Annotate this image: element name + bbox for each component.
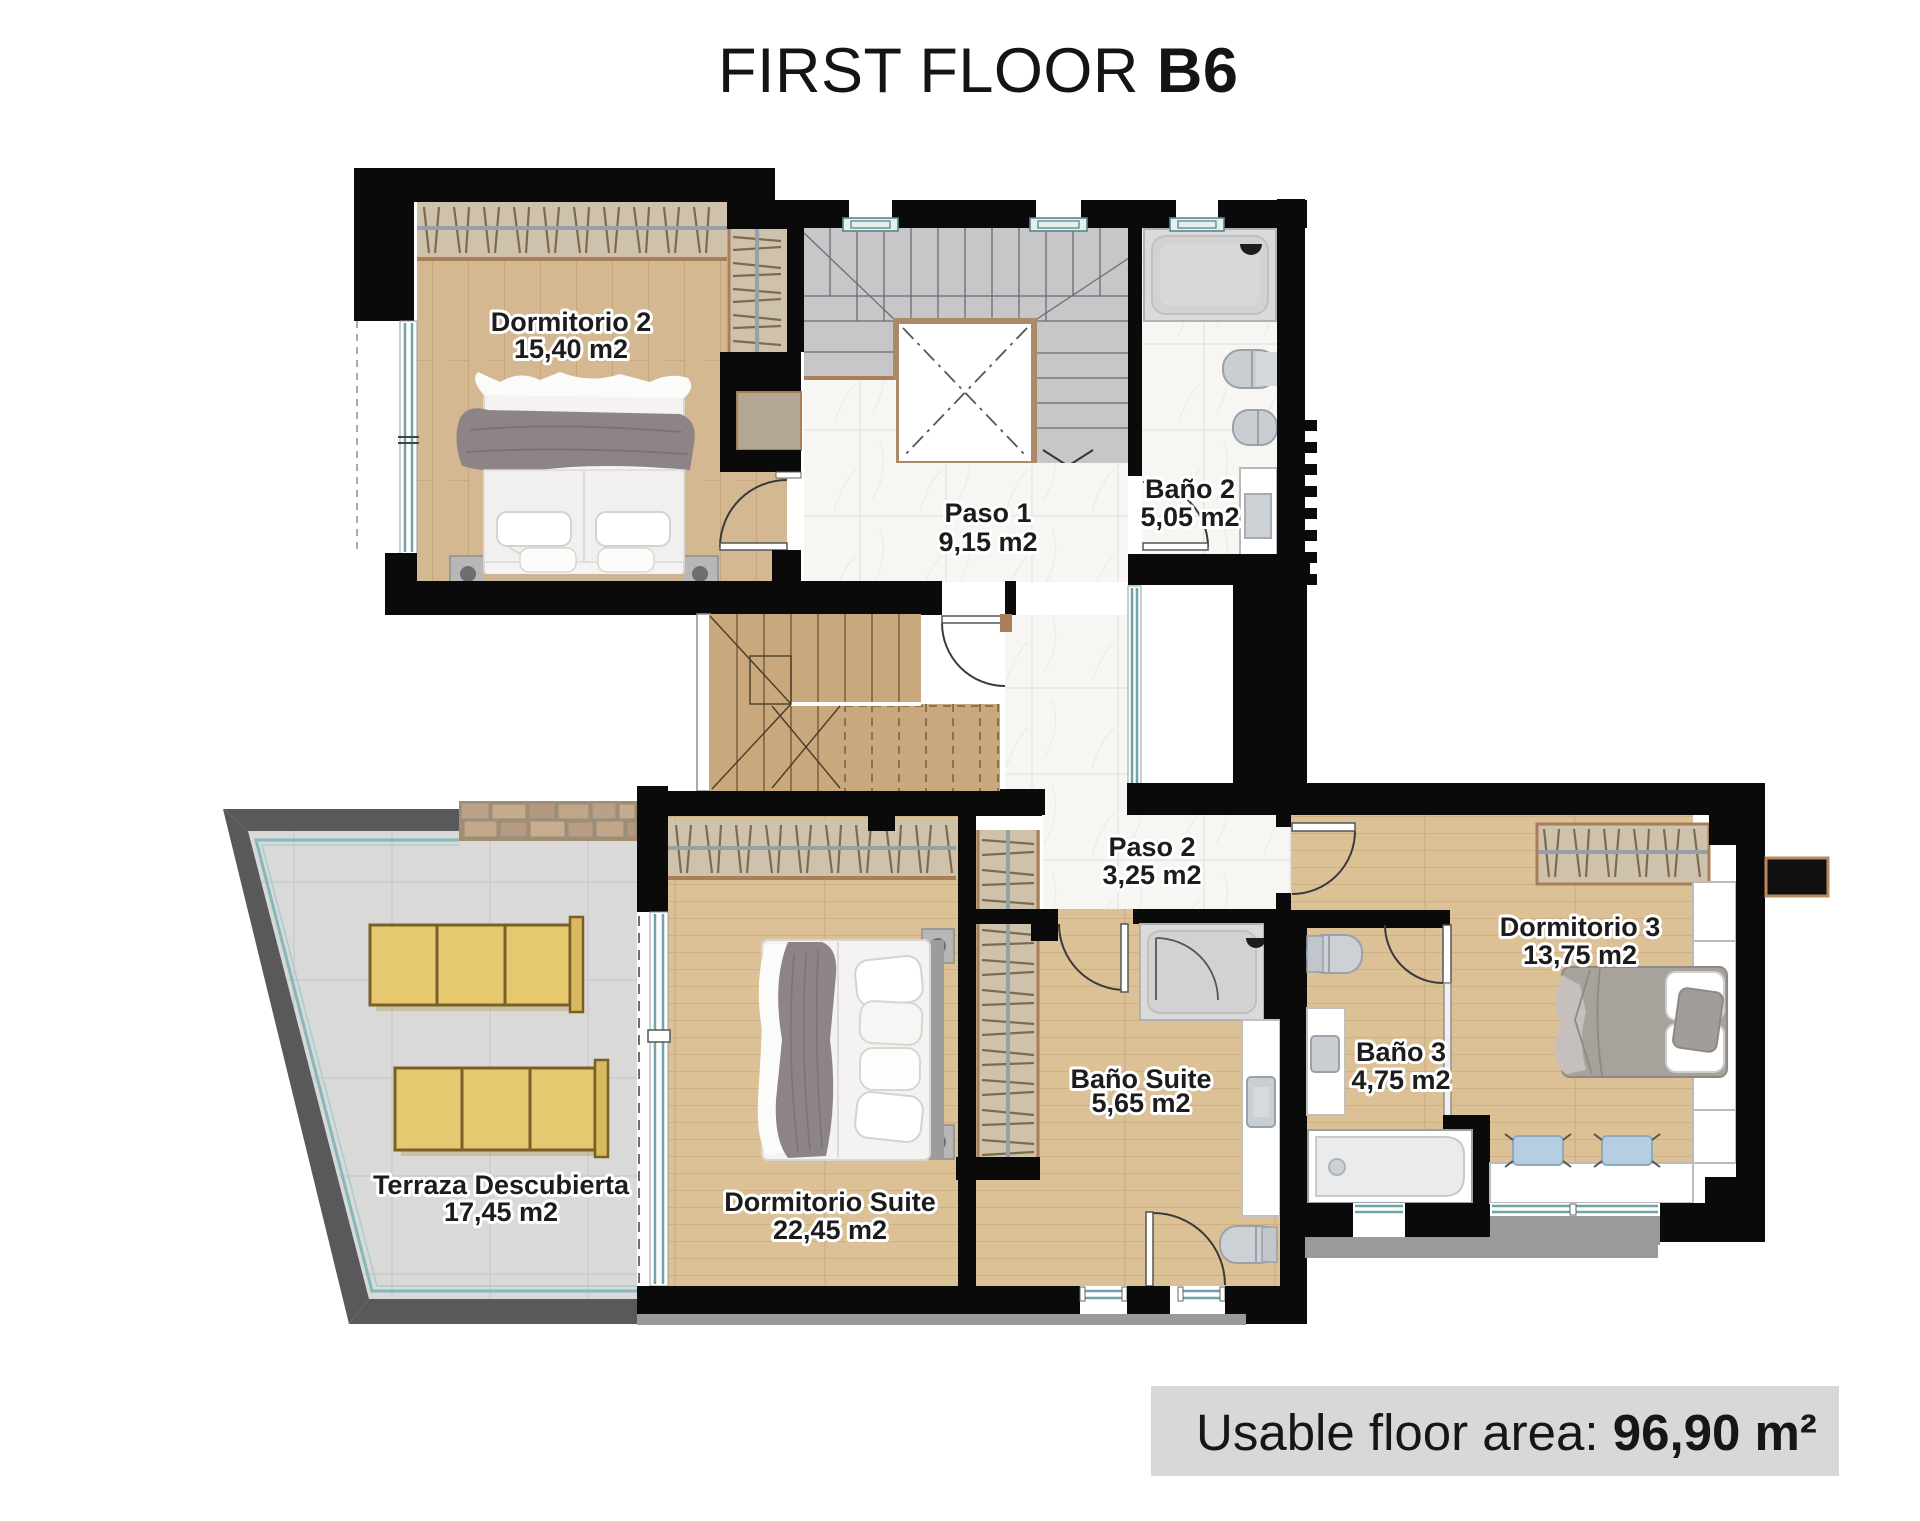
svg-text:5,05 m2: 5,05 m2	[1140, 502, 1239, 532]
svg-text:Baño 3: Baño 3	[1356, 1037, 1446, 1067]
svg-text:3,25 m2: 3,25 m2	[1102, 860, 1201, 890]
svg-text:13,75 m2: 13,75 m2	[1523, 940, 1637, 970]
svg-text:Dormitorio 3: Dormitorio 3	[1500, 912, 1661, 942]
svg-text:FIRST FLOOR B6: FIRST FLOOR B6	[718, 36, 1238, 106]
svg-text:Usable floor area: 96,90 m²: Usable floor area: 96,90 m²	[1196, 1404, 1817, 1461]
svg-text:Dormitorio Suite: Dormitorio Suite	[724, 1187, 936, 1217]
svg-text:Paso 1: Paso 1	[944, 498, 1031, 528]
svg-text:Baño 2: Baño 2	[1145, 474, 1235, 504]
svg-text:15,40 m2: 15,40 m2	[514, 334, 628, 364]
svg-text:4,75 m2: 4,75 m2	[1351, 1065, 1450, 1095]
svg-text:Dormitorio 2: Dormitorio 2	[491, 307, 652, 337]
svg-text:Terraza Descubierta: Terraza Descubierta	[373, 1170, 630, 1200]
svg-text:17,45 m2: 17,45 m2	[444, 1197, 558, 1227]
svg-text:Paso 2: Paso 2	[1108, 832, 1195, 862]
svg-text:22,45 m2: 22,45 m2	[773, 1215, 887, 1245]
svg-text:9,15 m2: 9,15 m2	[938, 527, 1037, 557]
svg-text:5,65 m2: 5,65 m2	[1091, 1088, 1190, 1118]
